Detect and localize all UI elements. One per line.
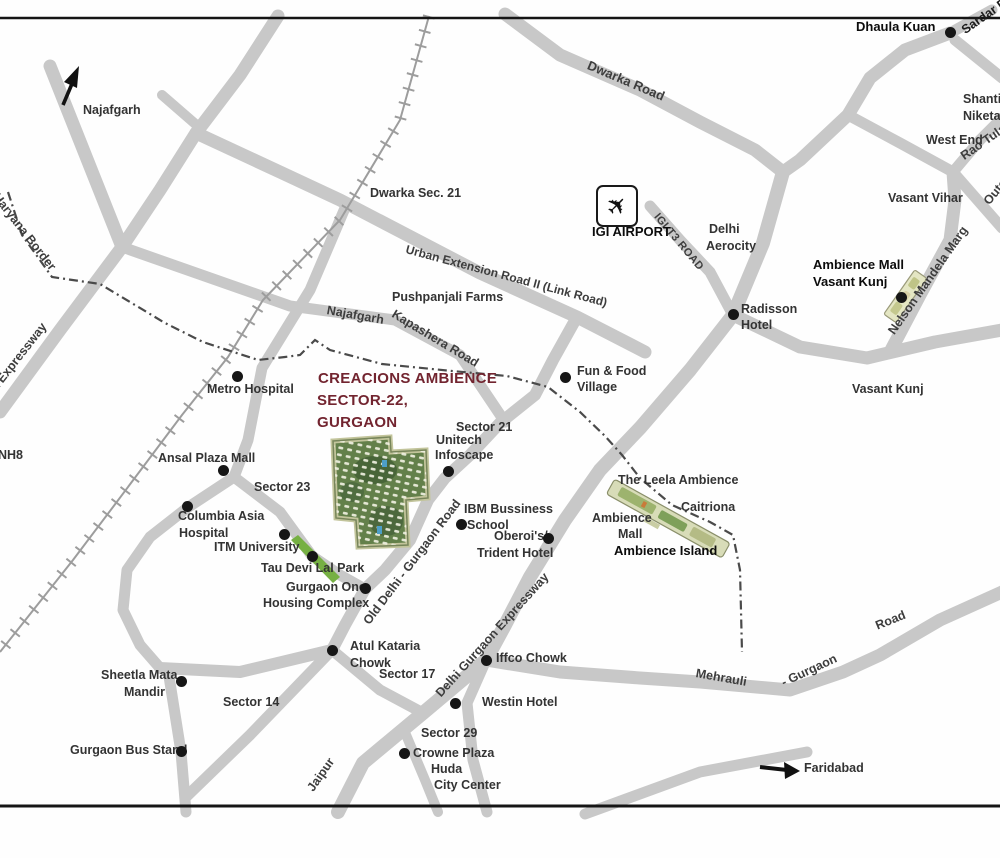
- label-vasant-kunj: Vasant Kunj: [852, 382, 924, 396]
- label-radisson-1: Radisson: [741, 302, 797, 316]
- label-shanti: Shanti: [963, 92, 1000, 106]
- label-crowne-plaza-1: Crowne Plaza: [413, 746, 494, 760]
- label-fun-food-1: Fun & Food: [577, 364, 646, 378]
- label-sheetla-2: Mandir: [124, 685, 165, 699]
- dot-ibm: [456, 519, 467, 530]
- dot-tau-devi: [307, 551, 318, 562]
- road-dwarka-expressway: [0, 247, 122, 412]
- label-ibm-1: IBM Bussiness: [464, 502, 553, 516]
- dot-westin: [450, 698, 461, 709]
- label-ambience-mall-vk-2: Vasant Kunj: [813, 275, 887, 289]
- road-vasant-kunj: [733, 315, 1000, 358]
- dot-crowne: [399, 748, 410, 759]
- label-sector-23: Sector 23: [254, 480, 310, 494]
- dot-unitech: [443, 466, 454, 477]
- label-delhi-aerocity-2: Aerocity: [706, 239, 756, 253]
- label-unitech-2: Infoscape: [435, 448, 493, 462]
- label-sector-17: Sector 17: [379, 667, 435, 681]
- igi-airport-icon: ✈: [596, 185, 638, 227]
- label-west-end: West End: [926, 133, 983, 147]
- project-title-line1: CREACIONS AMBIENCE: [318, 370, 497, 387]
- airplane-icon: ✈: [599, 188, 635, 224]
- dot-bus-stand: [176, 746, 187, 757]
- dot-radisson: [728, 309, 739, 320]
- label-leela-ambience: The Leela Ambience: [618, 473, 738, 487]
- label-nh8: NH8: [0, 448, 23, 462]
- road-west-end: [848, 115, 1000, 228]
- road-ansal-loop: [123, 477, 234, 668]
- label-crowne-plaza-3: City Center: [434, 778, 501, 792]
- road-metro-vertical: [234, 208, 345, 477]
- dot-atul-kataria: [327, 645, 338, 656]
- label-caitriona: Caitriona: [681, 500, 735, 514]
- dot-fun-food: [560, 372, 571, 383]
- label-gurgaon-one-2: Housing Complex: [263, 596, 369, 610]
- label-faridabad: Faridabad: [804, 761, 864, 775]
- label-metro-hospital: Metro Hospital: [207, 382, 294, 396]
- label-niketan: Niketan: [963, 109, 1000, 123]
- location-map: ✈ CREACIONS AMBIENCE SECTOR-22, GURGAON …: [0, 0, 1000, 858]
- project-title-line3: GURGAON: [317, 414, 397, 431]
- label-vasant-vihar: Vasant Vihar: [888, 191, 963, 205]
- label-unitech-1: Unitech: [436, 433, 482, 447]
- road-najafgarh: [50, 66, 122, 247]
- dot-ansal-plaza: [218, 465, 229, 476]
- label-radisson-2: Hotel: [741, 318, 772, 332]
- label-delhi-aerocity-1: Delhi: [709, 222, 740, 236]
- label-crowne-plaza-2: Huda: [431, 762, 462, 776]
- label-iffco-chowk: Iffco Chowk: [496, 651, 567, 665]
- label-sector-14: Sector 14: [223, 695, 279, 709]
- label-columbia-1: Columbia Asia: [178, 509, 264, 523]
- label-sector-29: Sector 29: [421, 726, 477, 740]
- label-ambience-mall-vk-1: Ambience Mall: [813, 258, 904, 272]
- label-itm-university: ITM University: [214, 540, 299, 554]
- label-najafgarh: Najafgarh: [83, 103, 141, 117]
- label-ambience-mall-1: Ambience: [592, 511, 652, 525]
- project-title-line2: SECTOR-22,: [317, 392, 408, 409]
- label-dwarka-sec-21: Dwarka Sec. 21: [370, 186, 461, 200]
- road-bus-stand: [168, 670, 186, 812]
- dot-gurgaon-one: [360, 583, 371, 594]
- label-trident: Trident Hotel: [477, 546, 553, 560]
- label-ambience-island: Ambience Island: [614, 544, 717, 558]
- label-igi-airport: IGI AIRPORT: [592, 225, 671, 239]
- dot-columbia: [182, 501, 193, 512]
- dot-iffco: [481, 655, 492, 666]
- dot-metro-hospital: [232, 371, 243, 382]
- label-westin-hotel: Westin Hotel: [482, 695, 557, 709]
- label-sector-21: Sector 21: [456, 420, 512, 434]
- label-atul-kataria-1: Atul Kataria: [350, 639, 420, 653]
- label-fun-food-2: Village: [577, 380, 617, 394]
- label-sheetla-1: Sheetla Mata: [101, 668, 177, 682]
- label-gurgaon-bus-stand: Gurgaon Bus Stand: [70, 743, 187, 757]
- road-dhaula-se: [955, 40, 1000, 78]
- label-oberoi: Oberoi's/: [494, 529, 548, 543]
- label-gurgaon-one-1: Gurgaon One: [286, 580, 366, 594]
- road-stub: [162, 95, 200, 128]
- label-ambience-mall-2: Mall: [618, 527, 642, 541]
- label-columbia-2: Hospital: [179, 526, 228, 540]
- label-tau-devi-lal-park: Tau Devi Lal Park: [261, 561, 364, 575]
- dot-dhaula-kuan: [945, 27, 956, 38]
- label-ansal-plaza: Ansal Plaza Mall: [158, 451, 255, 465]
- dot-itm: [279, 529, 290, 540]
- dot-sheetla: [176, 676, 187, 687]
- najafgarh-direction-arrow-icon: [63, 66, 79, 105]
- dot-oberoi: [543, 533, 554, 544]
- dot-ambience-mall-vk: [896, 292, 907, 303]
- label-dhaula-kuan: Dhaula Kuan: [856, 20, 935, 34]
- label-pushpanjali-farms: Pushpanjali Farms: [392, 290, 503, 304]
